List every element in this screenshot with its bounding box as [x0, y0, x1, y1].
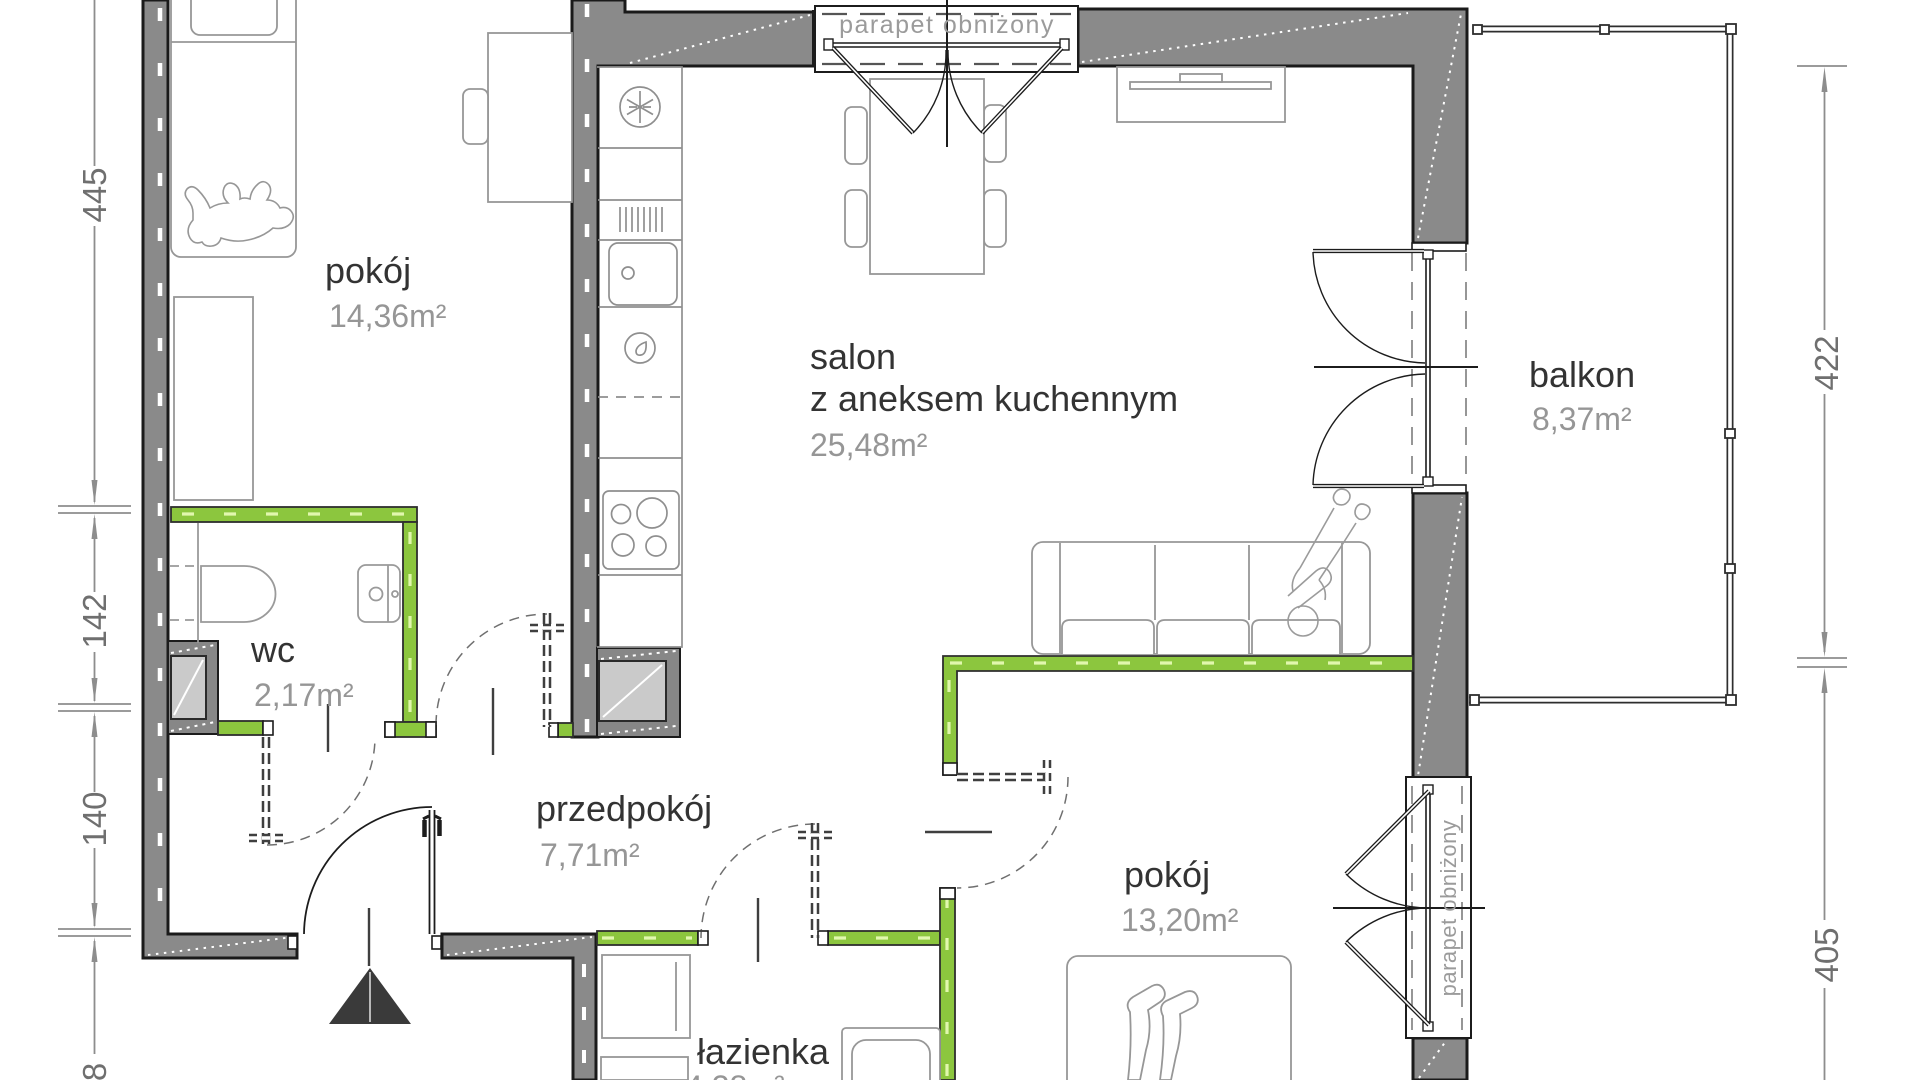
svg-text:405: 405 — [1808, 927, 1845, 982]
svg-text:z aneksem kuchennym: z aneksem kuchennym — [810, 378, 1178, 419]
svg-text:25,48m²: 25,48m² — [810, 427, 928, 463]
svg-text:wc: wc — [250, 629, 295, 670]
svg-text:8: 8 — [76, 1063, 113, 1080]
svg-text:salon: salon — [810, 336, 896, 377]
svg-text:parapet obniżony: parapet obniżony — [1436, 820, 1461, 997]
svg-text:pokój: pokój — [1124, 854, 1210, 895]
svg-text:przedpokój: przedpokój — [536, 788, 712, 829]
svg-text:140: 140 — [76, 791, 113, 846]
svg-text:2,17m²: 2,17m² — [254, 677, 354, 713]
svg-text:14,36m²: 14,36m² — [329, 298, 447, 334]
svg-text:7,71m²: 7,71m² — [540, 837, 640, 873]
svg-text:142: 142 — [76, 593, 113, 648]
svg-text:13,20m²: 13,20m² — [1121, 902, 1239, 938]
svg-text:parapet obniżony: parapet obniżony — [839, 11, 1055, 39]
svg-text:4,38m²: 4,38m² — [685, 1069, 785, 1080]
svg-text:łazienka: łazienka — [697, 1031, 830, 1072]
svg-text:422: 422 — [1808, 335, 1845, 390]
svg-text:445: 445 — [76, 167, 113, 222]
svg-text:balkon: balkon — [1529, 354, 1635, 395]
svg-text:pokój: pokój — [325, 250, 411, 291]
svg-text:8,37m²: 8,37m² — [1532, 401, 1632, 437]
